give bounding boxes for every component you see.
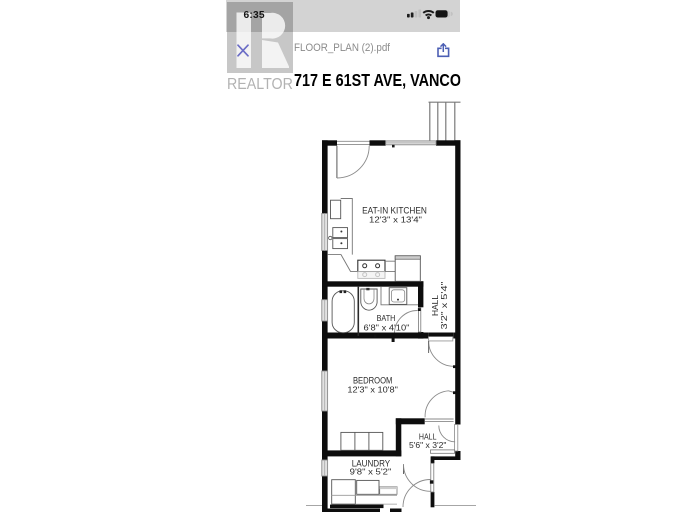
svg-text:12'3" x 13'4": 12'3" x 13'4": [369, 214, 422, 224]
svg-text:6'8" x 4'10": 6'8" x 4'10": [364, 322, 410, 332]
svg-text:12'3" x 10'8": 12'3" x 10'8": [347, 384, 398, 394]
svg-text:9'8" x 5'2": 9'8" x 5'2": [350, 467, 392, 477]
svg-text:3'2" x 5'4": 3'2" x 5'4": [439, 281, 449, 329]
svg-text:5'6" x 3'2": 5'6" x 3'2": [409, 440, 446, 450]
